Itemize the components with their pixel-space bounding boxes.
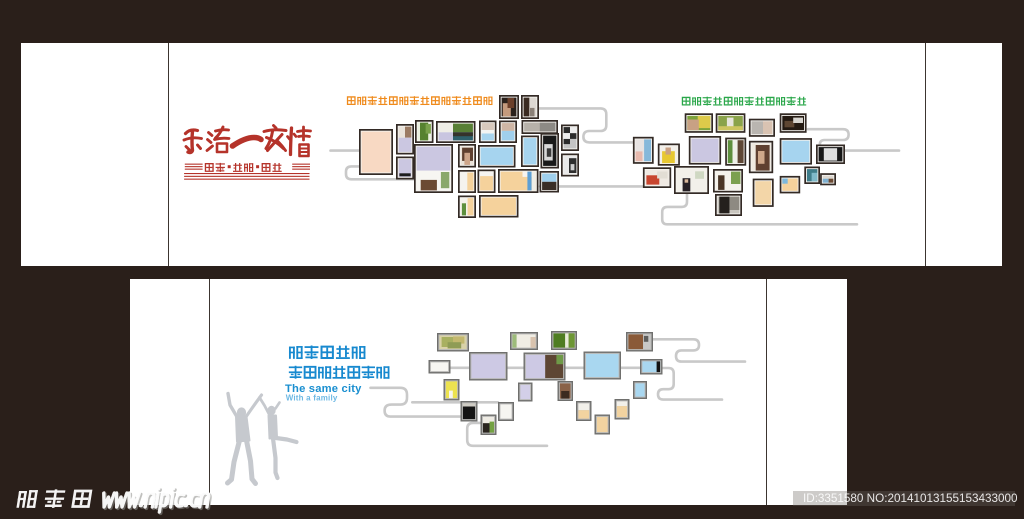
svg-text:With a family: With a family bbox=[286, 394, 338, 403]
